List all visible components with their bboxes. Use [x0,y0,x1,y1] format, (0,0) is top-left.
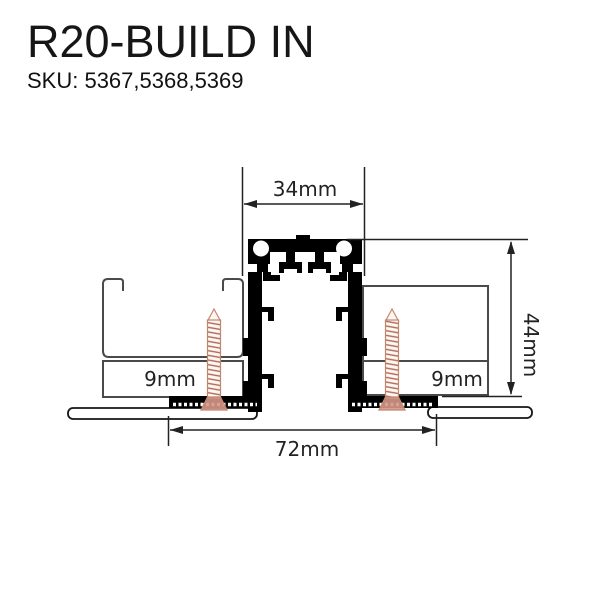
dimension-label-left-board: 9mm [144,367,196,391]
product-title: R20-BUILD IN [27,18,315,65]
ceiling-board-left [68,408,257,419]
screw-port-hole-right [336,241,352,257]
dimension-72mm: 72mm [169,414,437,461]
dimension-label-top-width: 34mm [273,177,337,201]
dimension-label-height: 44mm [519,313,543,377]
dimension-label-bottom-width: 72mm [275,437,339,461]
ceiling-board-right [428,407,532,418]
screw-port-hole-left [253,241,269,257]
profile-left-wall [248,272,262,412]
header: R20-BUILD IN SKU: 5367,5368,5369 [27,18,315,94]
profile-right-wall [348,272,362,412]
dimension-label-right-board: 9mm [431,367,483,391]
left-furring-channel [103,279,243,357]
product-sku: SKU: 5367,5368,5369 [27,68,315,94]
product-spec-sheet: R20-BUILD IN SKU: 5367,5368,5369 9mm 9mm [0,0,600,600]
